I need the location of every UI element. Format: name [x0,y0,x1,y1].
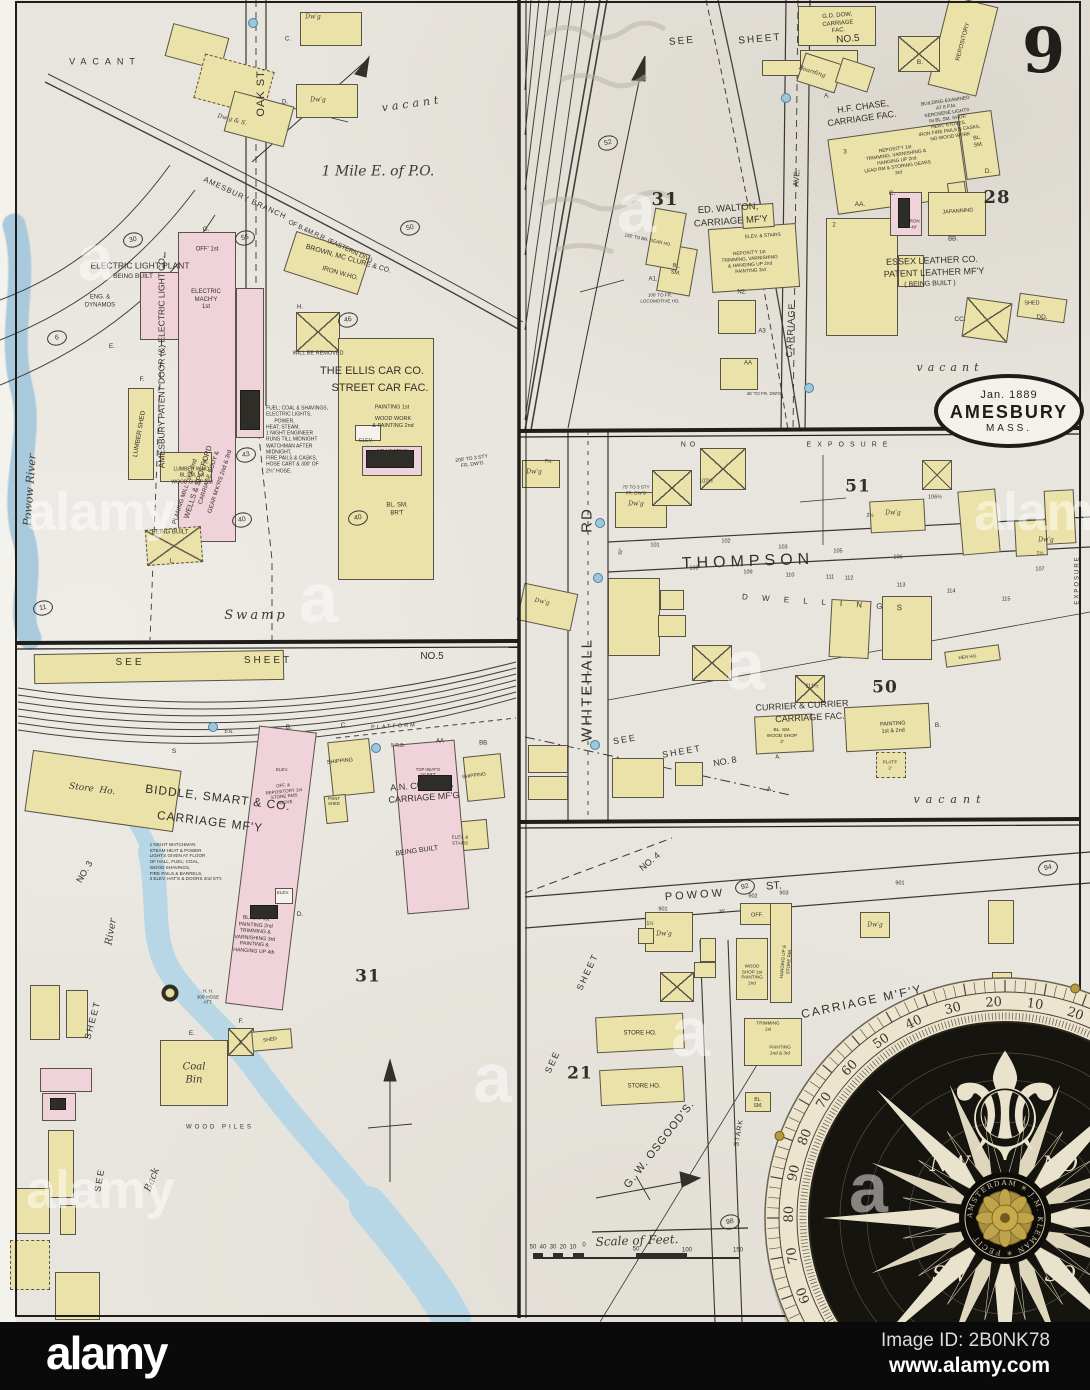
brass-screw [775,1131,784,1140]
badge-state: MASS. [986,423,1032,434]
svg-text:80: 80 [782,1206,797,1223]
image-id: Image ID: 2B0NK78 [881,1330,1050,1352]
badge-date: Jan. 1889 [980,389,1037,401]
sanborn-map-sheet: VACANTvacantOAK ST.1 Mile E. of P.O.AMES… [0,0,1090,1390]
stock-photo-footer: alamy Image ID: 2B0NK78 www.alamy.com [0,1322,1090,1390]
badge-city: AMESBURY [950,402,1068,423]
compass-point-NW: NW [929,1152,972,1176]
alamy-url: www.alamy.com [881,1354,1050,1378]
svg-text:70: 70 [784,1246,802,1265]
compass-point-S: S [998,1285,1012,1309]
compass-point-O: O [1074,1207,1090,1231]
map-badge: Jan. 1889 AMESBURY MASS. [934,374,1084,448]
compass-point-SO: SO [1044,1262,1076,1286]
compass-point-NO: NO [1041,1152,1078,1176]
compass-point-SW: SW [932,1262,970,1286]
alamy-logo: alamy [46,1326,166,1380]
sheet-number: 9 [1022,14,1065,87]
brass-screw [1071,984,1080,993]
svg-text:20: 20 [985,995,1002,1011]
svg-text:10: 10 [1026,996,1044,1013]
compass-point-W: W [916,1207,940,1231]
